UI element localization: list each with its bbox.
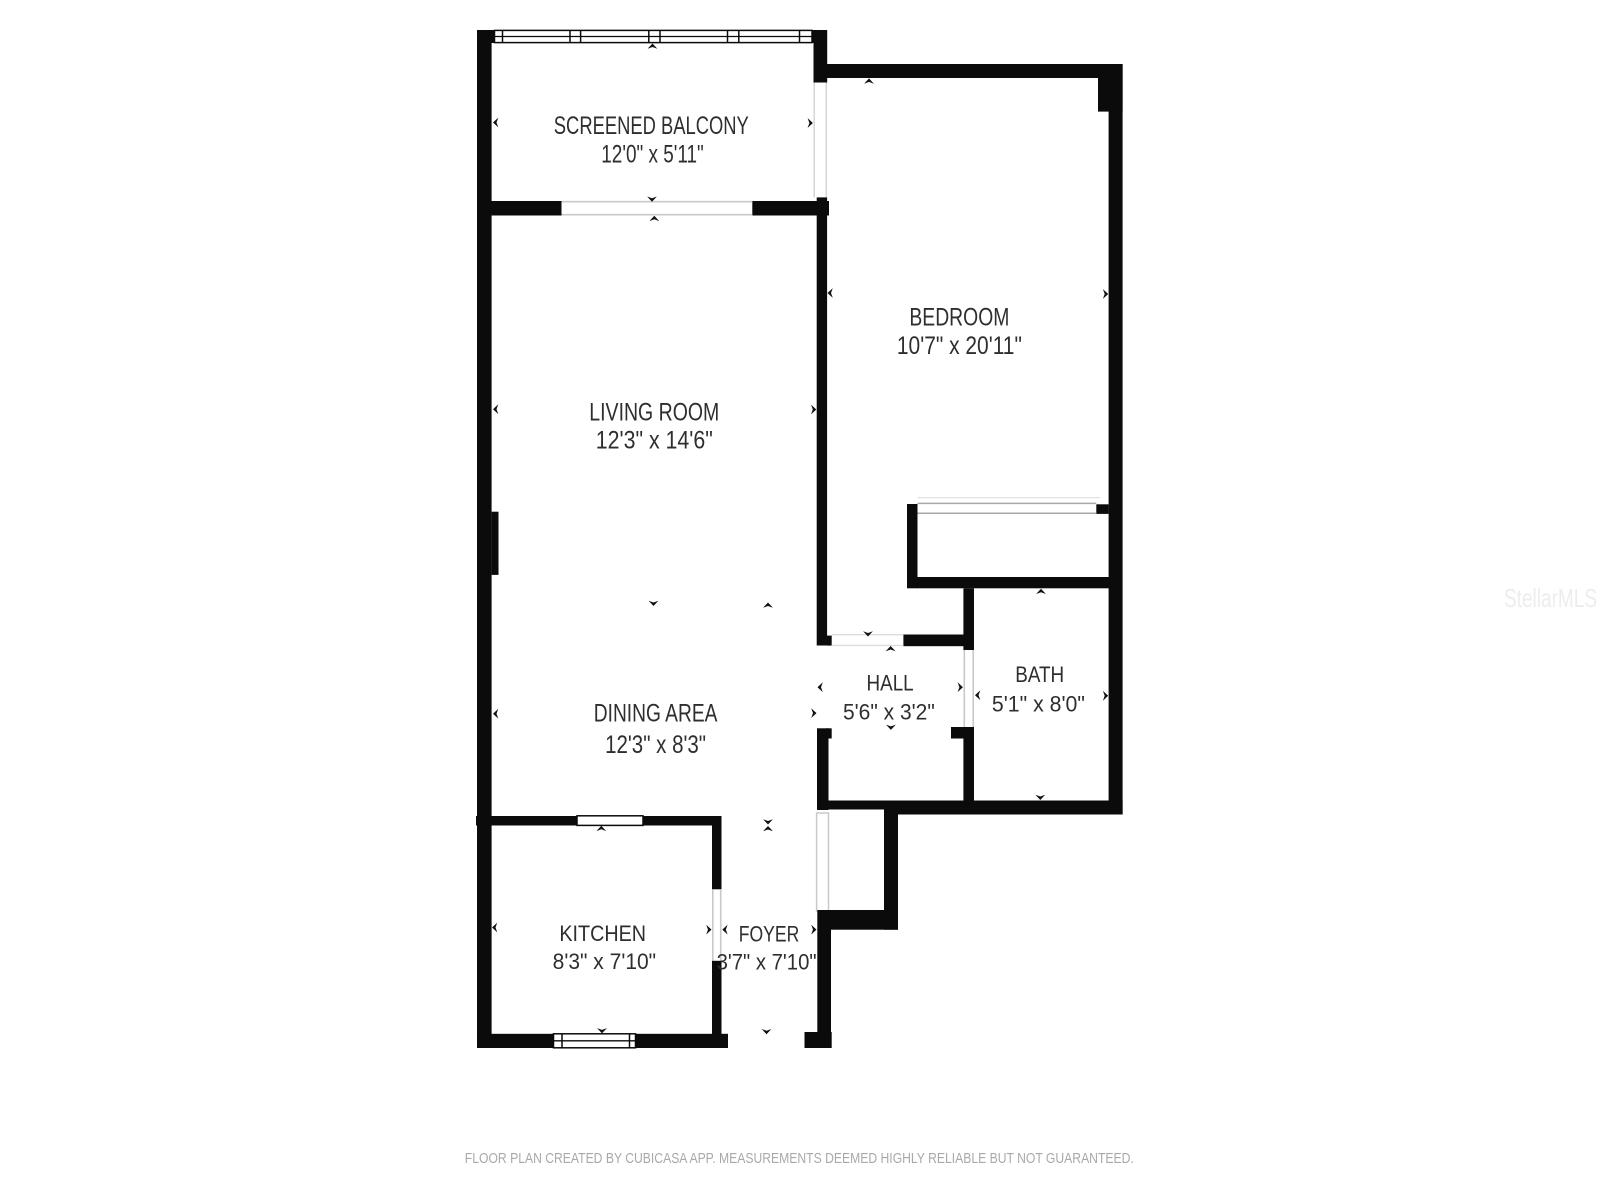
svg-text:10'7" x 20'11": 10'7" x 20'11" (897, 332, 1022, 360)
svg-text:StellarMLS: StellarMLS (1504, 583, 1597, 613)
svg-text:BATH: BATH (1015, 662, 1064, 687)
svg-text:SCREENED BALCONY: SCREENED BALCONY (554, 112, 749, 140)
svg-text:12'3" x 8'3": 12'3" x 8'3" (605, 731, 706, 759)
svg-text:FOYER: FOYER (739, 922, 800, 947)
svg-text:12'0" x 5'11": 12'0" x 5'11" (601, 140, 704, 168)
svg-text:5'1" x 8'0": 5'1" x 8'0" (992, 692, 1085, 717)
svg-text:KITCHEN: KITCHEN (559, 921, 646, 946)
svg-text:12'3" x 14'6": 12'3" x 14'6" (596, 427, 713, 455)
svg-text:LIVING ROOM: LIVING ROOM (589, 398, 719, 426)
svg-text:BEDROOM: BEDROOM (909, 303, 1009, 331)
svg-text:HALL: HALL (867, 671, 914, 696)
svg-text:FLOOR PLAN CREATED BY CUBICASA: FLOOR PLAN CREATED BY CUBICASA APP. MEAS… (465, 1150, 1134, 1167)
svg-text:DINING AREA: DINING AREA (594, 699, 718, 727)
svg-text:5'6" x 3'2": 5'6" x 3'2" (843, 699, 935, 724)
svg-text:3'7" x 7'10": 3'7" x 7'10" (717, 950, 817, 975)
svg-text:8'3" x 7'10": 8'3" x 7'10" (553, 949, 657, 974)
